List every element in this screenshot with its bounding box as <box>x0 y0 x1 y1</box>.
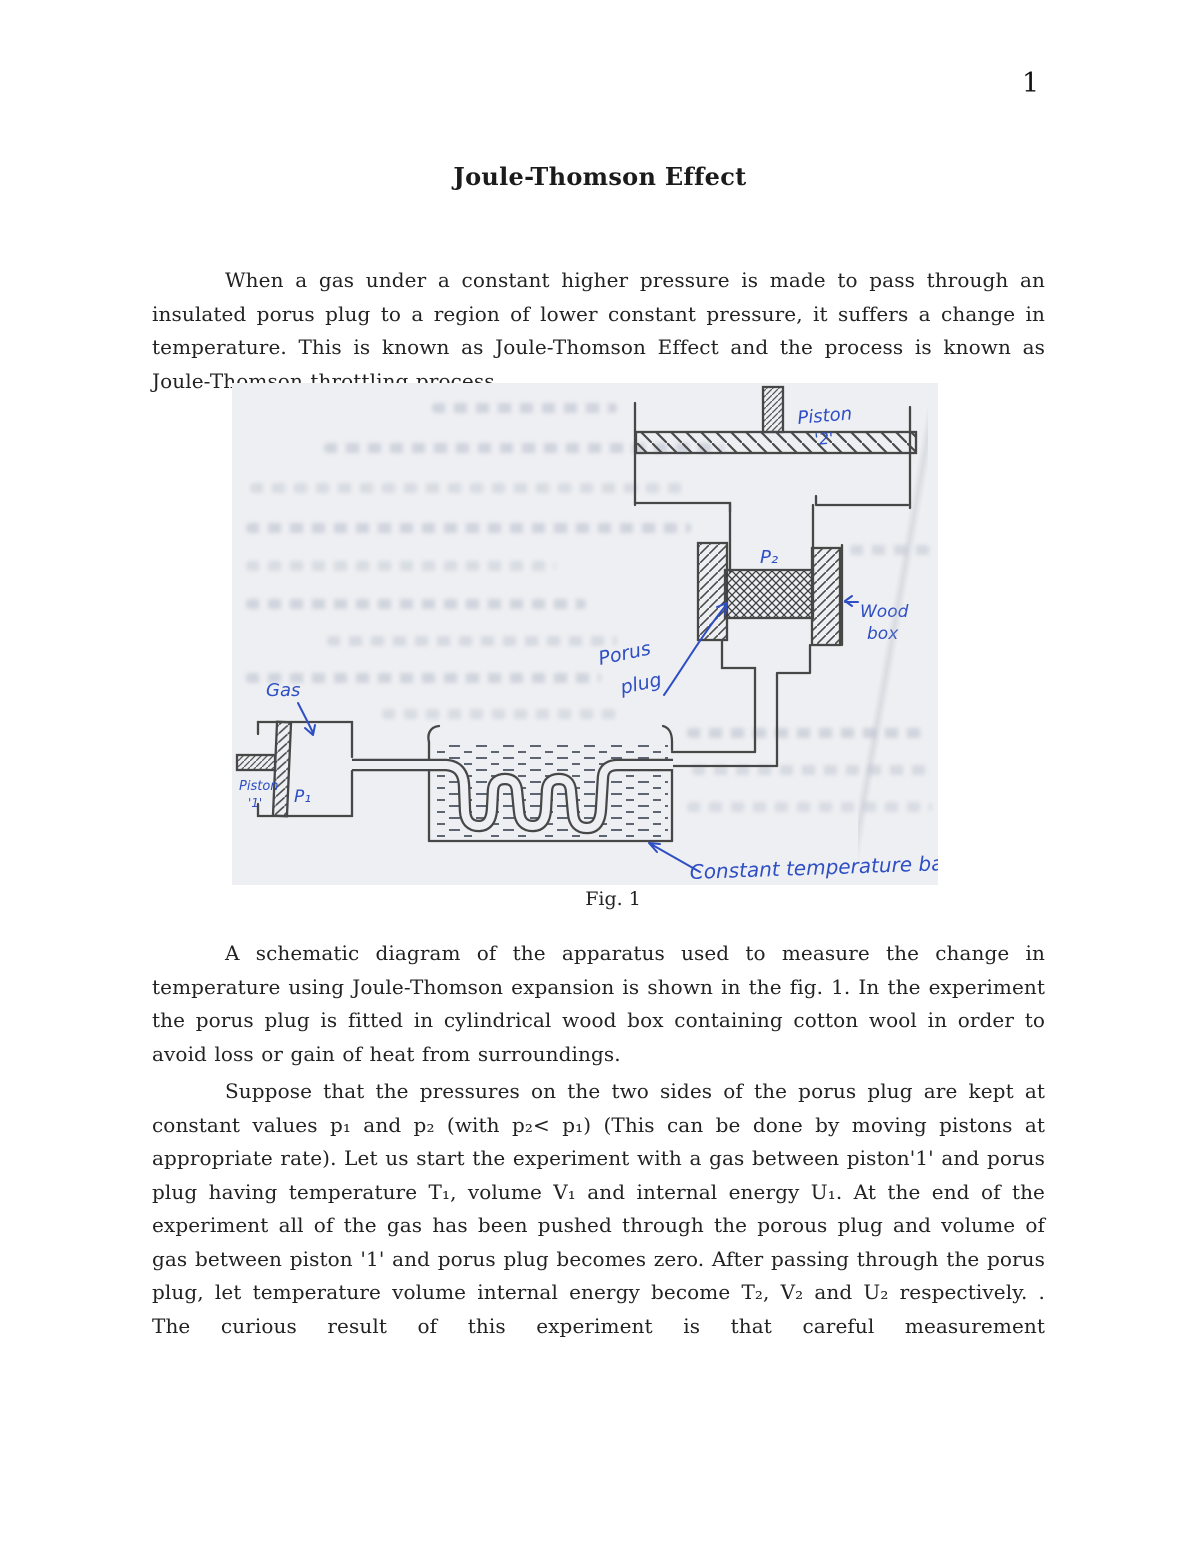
figure-caption: Fig. 1 <box>260 888 966 910</box>
paragraph-intro: When a gas under a constant higher press… <box>152 264 1045 398</box>
paragraph-experiment: Suppose that the pressures on the two si… <box>152 1075 1045 1343</box>
gas-arrow <box>298 703 315 735</box>
bleedthrough-line <box>850 545 930 555</box>
page-title: Joule-Thomson Effect <box>0 162 1200 191</box>
porous-plug <box>725 570 813 618</box>
label-gas: Gas <box>266 680 300 701</box>
piston-2-rod <box>763 387 783 432</box>
paragraph-apparatus: A schematic diagram of the apparatus use… <box>152 937 1045 1071</box>
figure-photo: Piston '2' P₂ Wood box Porus plug Gas Pi… <box>232 383 938 885</box>
label-piston-2-number: '2' <box>814 428 835 449</box>
label-p2: P₂ <box>760 547 778 568</box>
label-wood-box-1: Wood <box>860 602 909 622</box>
connecting-tube <box>672 640 810 766</box>
label-p1: P₁ <box>294 787 311 807</box>
piston-2-head <box>636 432 916 453</box>
wood-box-arrow <box>845 596 858 606</box>
label-wood-box-2: box <box>867 624 899 644</box>
pencil-drawing <box>428 387 916 841</box>
piston-1-plate <box>273 722 291 817</box>
porus-plug-arrow <box>664 603 727 695</box>
page-number: 1 <box>1022 68 1039 99</box>
label-piston-2: Piston <box>797 403 853 429</box>
label-porus-plug-1: Porus <box>596 637 652 670</box>
label-piston-1: Piston <box>239 779 279 794</box>
label-porus-plug-2: plug <box>617 669 663 699</box>
piston-2-cylinder <box>635 387 916 512</box>
piston-1-rod <box>237 755 275 770</box>
label-piston-1-number: '1' <box>248 796 262 810</box>
document-page: 1 Joule-Thomson Effect When a gas under … <box>0 0 1200 1553</box>
apparatus-diagram: Piston '2' P₂ Wood box Porus plug Gas Pi… <box>232 383 938 885</box>
label-bath: Constant temperature bath <box>689 850 938 884</box>
